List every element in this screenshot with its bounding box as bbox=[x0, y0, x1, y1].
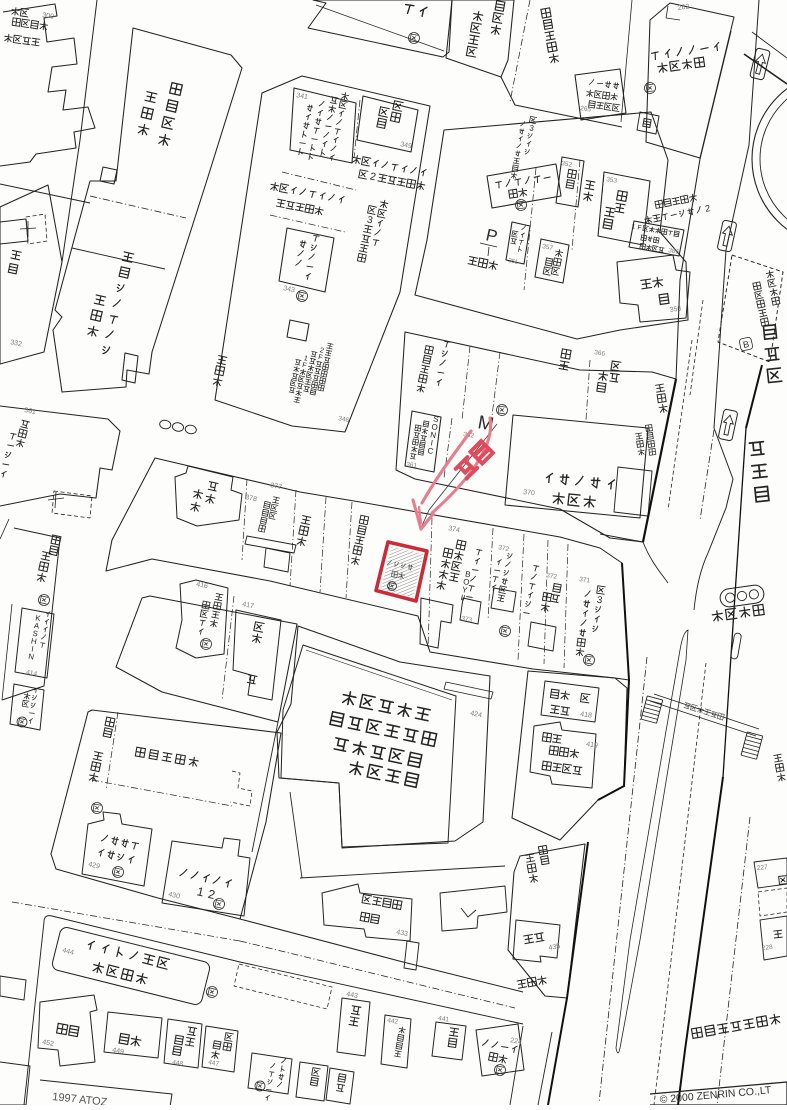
svg-text:228: 228 bbox=[761, 944, 773, 952]
svg-text:370: 370 bbox=[523, 489, 535, 497]
svg-text:227: 227 bbox=[756, 864, 768, 872]
